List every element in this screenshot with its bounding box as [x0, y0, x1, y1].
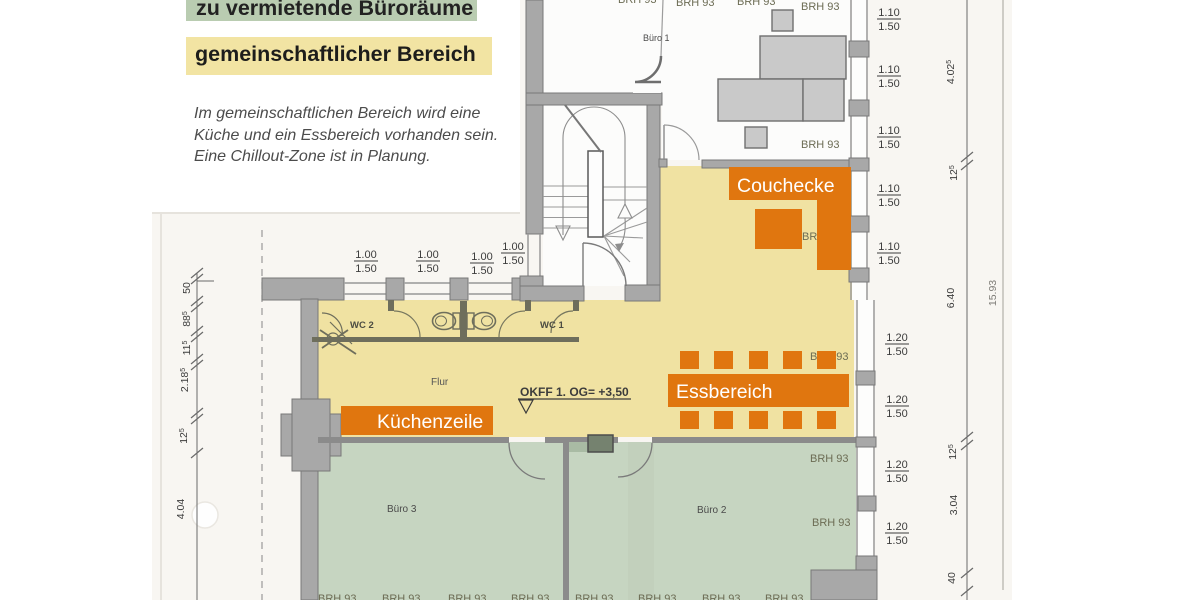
- svg-text:WC 1: WC 1: [540, 320, 564, 331]
- svg-text:1.20: 1.20: [886, 394, 907, 406]
- svg-text:1.50: 1.50: [878, 21, 899, 33]
- svg-text:1.20: 1.20: [886, 332, 907, 344]
- svg-text:1.50: 1.50: [878, 139, 899, 151]
- svg-text:Flur: Flur: [431, 377, 449, 388]
- svg-text:BRH 93: BRH 93: [676, 0, 715, 9]
- svg-text:4.04: 4.04: [175, 499, 187, 520]
- svg-text:BRH 93: BRH 93: [382, 593, 421, 600]
- svg-text:Couchecke: Couchecke: [737, 175, 835, 197]
- svg-text:1.00: 1.00: [502, 241, 523, 253]
- svg-text:BRH 93: BRH 93: [801, 139, 840, 151]
- svg-text:1.10: 1.10: [878, 183, 899, 195]
- svg-text:1.50: 1.50: [878, 197, 899, 209]
- svg-text:Essbereich: Essbereich: [676, 381, 772, 403]
- svg-text:6.40: 6.40: [945, 288, 957, 309]
- svg-text:Büro 3: Büro 3: [387, 504, 417, 515]
- svg-text:BRH 93: BRH 93: [575, 593, 614, 600]
- svg-text:Büro 1: Büro 1: [643, 33, 670, 43]
- svg-text:1.50: 1.50: [355, 263, 376, 275]
- svg-text:BRH 93: BRH 93: [812, 517, 851, 529]
- svg-text:1.10: 1.10: [878, 125, 899, 137]
- svg-text:BRH 93: BRH 93: [810, 453, 849, 465]
- svg-text:1.10: 1.10: [878, 64, 899, 76]
- svg-text:BRH 93: BRH 93: [638, 593, 677, 600]
- svg-text:1.50: 1.50: [878, 78, 899, 90]
- svg-text:WC 2: WC 2: [350, 320, 374, 331]
- svg-text:BRH 93: BRH 93: [702, 593, 741, 600]
- svg-text:BRH 93: BRH 93: [511, 593, 550, 600]
- svg-text:1.50: 1.50: [417, 263, 438, 275]
- svg-text:1.00: 1.00: [417, 249, 438, 261]
- svg-text:Küchenzeile: Küchenzeile: [377, 411, 483, 433]
- svg-text:BRH 93: BRH 93: [448, 593, 487, 600]
- svg-text:50: 50: [181, 282, 193, 294]
- svg-text:1.10: 1.10: [878, 7, 899, 19]
- svg-text:1.50: 1.50: [886, 535, 907, 547]
- svg-text:BRH 93: BRH 93: [618, 0, 657, 6]
- svg-text:1.10: 1.10: [878, 241, 899, 253]
- svg-text:BRH 93: BRH 93: [737, 0, 776, 8]
- svg-text:1.50: 1.50: [502, 255, 523, 267]
- svg-text:3.04: 3.04: [948, 495, 960, 516]
- svg-text:1.50: 1.50: [471, 265, 492, 277]
- svg-text:15.93: 15.93: [987, 280, 999, 306]
- svg-text:BRH 93: BRH 93: [801, 1, 840, 13]
- svg-text:1.20: 1.20: [886, 459, 907, 471]
- svg-text:1.00: 1.00: [355, 249, 376, 261]
- svg-text:OKFF 1. OG= +3,50: OKFF 1. OG= +3,50: [520, 385, 629, 399]
- svg-text:BRH 93: BRH 93: [765, 593, 804, 600]
- svg-text:40: 40: [946, 572, 958, 584]
- svg-text:1.50: 1.50: [878, 255, 899, 267]
- svg-text:Büro 2: Büro 2: [697, 505, 727, 516]
- svg-text:1.00: 1.00: [471, 251, 492, 263]
- svg-text:BRH 93: BRH 93: [318, 593, 357, 600]
- svg-text:1.50: 1.50: [886, 346, 907, 358]
- svg-text:1.50: 1.50: [886, 473, 907, 485]
- svg-text:1.50: 1.50: [886, 408, 907, 420]
- svg-text:1.20: 1.20: [886, 521, 907, 533]
